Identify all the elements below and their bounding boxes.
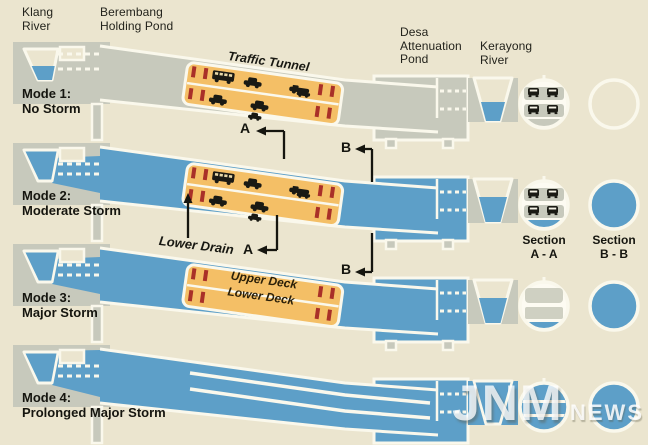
section-marker-a-bottom: A	[243, 241, 253, 257]
mode3-section-aa	[520, 277, 568, 331]
watermark-news: NEWS	[570, 400, 644, 426]
mode1-row	[13, 42, 638, 148]
section-bb-caption: Section B - B	[579, 234, 648, 261]
mode3-pond-foot-1	[386, 341, 396, 350]
mode1-section-aa	[520, 75, 568, 129]
section-cut-b-bottom	[355, 233, 372, 277]
mode2-traffic-tunnel	[181, 163, 343, 233]
mode1-pond-foot-1	[386, 139, 396, 148]
berembang-holding-pond-label: Berembang Holding Pond	[100, 6, 173, 33]
mode2-section-aa	[520, 176, 568, 230]
mode1-pond-foot-2	[443, 139, 453, 148]
section-cut-b-top	[355, 145, 372, 183]
mode3-section-bb	[590, 282, 638, 330]
section-marker-b-bottom: B	[341, 261, 351, 277]
mode1-pillar	[92, 104, 102, 140]
mode4-gate-tower	[60, 350, 84, 363]
mode2-section-bb	[590, 181, 638, 229]
mode3-gate-tower	[60, 249, 84, 262]
mode1-section-bb	[590, 80, 638, 128]
mode1-traffic-tunnel	[181, 62, 343, 132]
watermark-jnm: JNM	[452, 374, 564, 432]
mode2-label: Mode 2: Moderate Storm	[22, 189, 121, 218]
section-aa-caption: Section A - A	[509, 234, 579, 261]
klang-river-label: Klang River	[22, 6, 53, 33]
kerayong-river-label: Kerayong River	[480, 40, 532, 67]
mode2-pond-foot-2	[443, 240, 453, 249]
mode3-pond-foot-2	[443, 341, 453, 350]
diagram-stage: Klang River Berembang Holding Pond Desa …	[0, 0, 648, 445]
section-marker-a-top: A	[240, 120, 250, 136]
mode3-label: Mode 3: Major Storm	[22, 291, 98, 320]
mode2-gate-tower	[60, 148, 84, 161]
mode4-label: Mode 4: Prolonged Major Storm	[22, 391, 166, 420]
desa-attenuation-pond-label: Desa Attenuation Pond	[400, 26, 462, 67]
mode2-pond-foot-1	[386, 240, 396, 249]
mode1-label: Mode 1: No Storm	[22, 87, 81, 116]
section-cut-a-top	[256, 127, 284, 160]
section-marker-b-top: B	[341, 139, 351, 155]
